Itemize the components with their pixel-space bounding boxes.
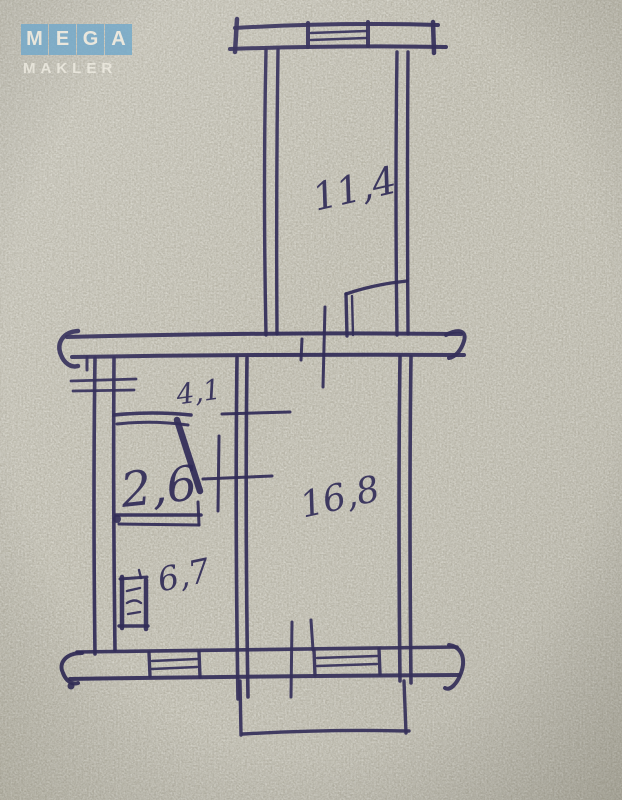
logo-letter: M xyxy=(26,28,43,51)
photo-of-floorplan-sketch: M E G A MAKLER xyxy=(0,0,622,800)
paper-vignette-overlay xyxy=(0,0,622,800)
logo-tile: G xyxy=(77,24,104,55)
logo-tile: M xyxy=(21,24,48,55)
logo: M E G A MAKLER xyxy=(21,24,132,77)
logo-tile: A xyxy=(105,24,132,55)
logo-tile: E xyxy=(49,24,76,55)
logo-letter: E xyxy=(56,28,69,51)
floorplan-drawing: 11,4 4,1 2,6 16,8 6,7 xyxy=(0,0,622,800)
logo-letter: G xyxy=(83,28,99,51)
logo-letter: A xyxy=(111,28,125,51)
logo-word: M E G A xyxy=(21,24,132,55)
logo-subtitle: MAKLER xyxy=(21,60,132,77)
